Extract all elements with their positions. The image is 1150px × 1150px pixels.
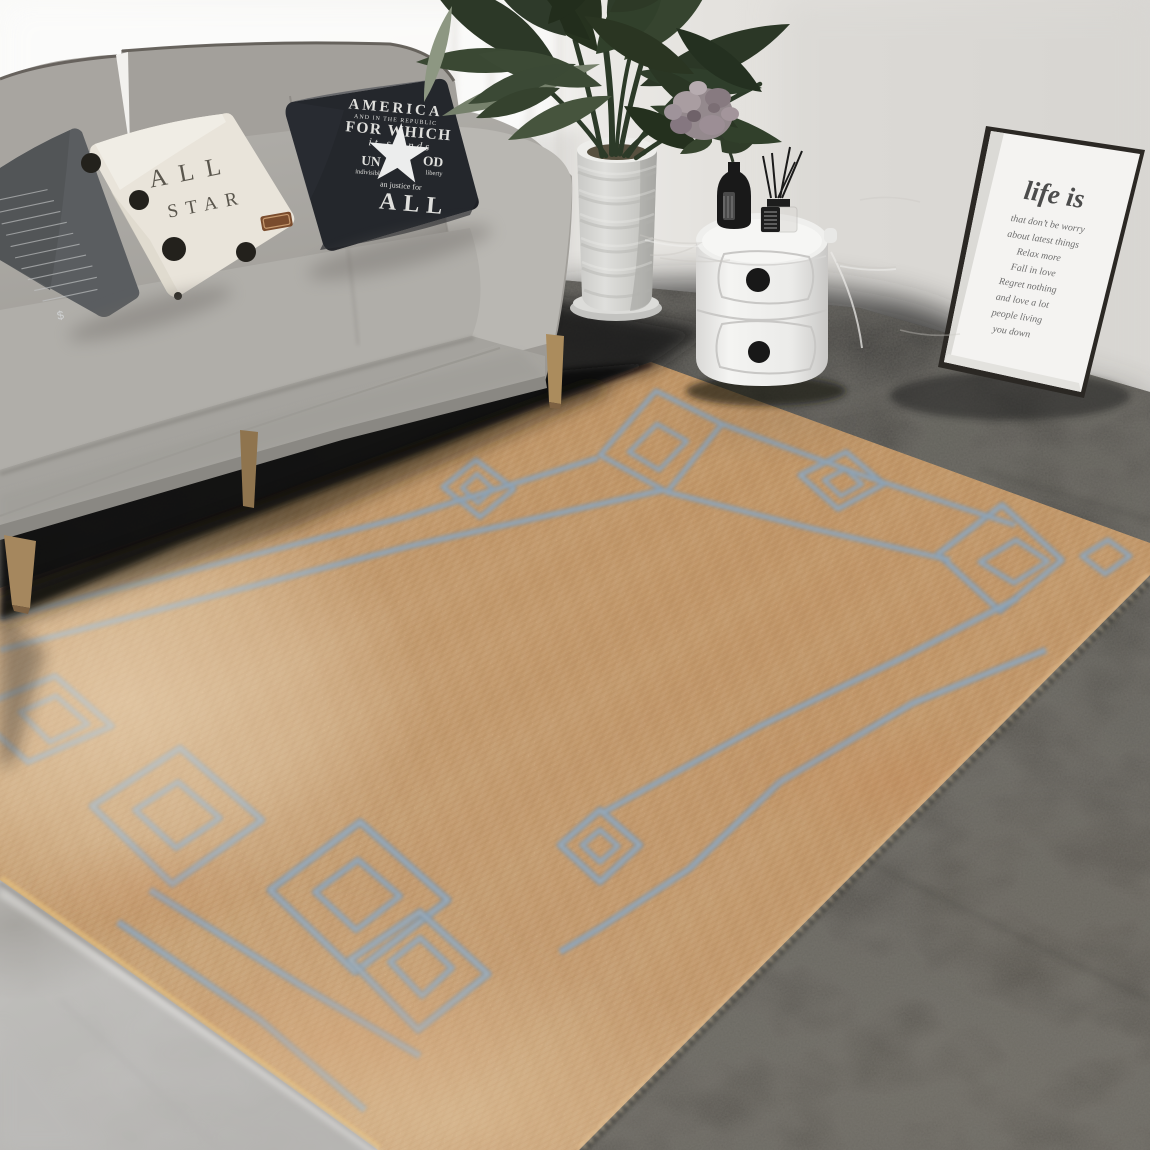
svg-text:OD: OD [422, 153, 444, 170]
svg-text:UN: UN [361, 153, 382, 170]
